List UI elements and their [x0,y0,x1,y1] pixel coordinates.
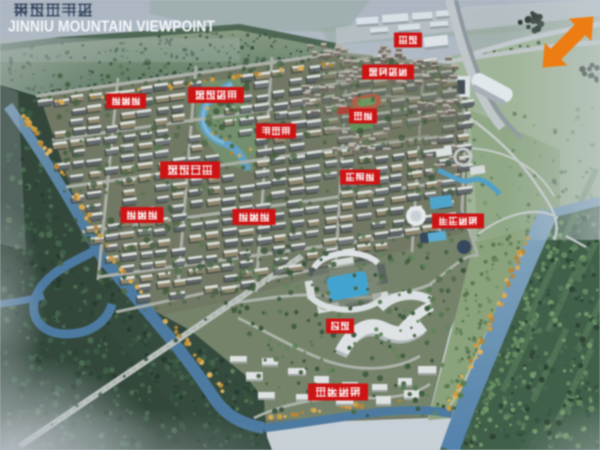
svg-text:JINNIU MOUNTAIN VIEWPOINT: JINNIU MOUNTAIN VIEWPOINT [8,19,215,36]
